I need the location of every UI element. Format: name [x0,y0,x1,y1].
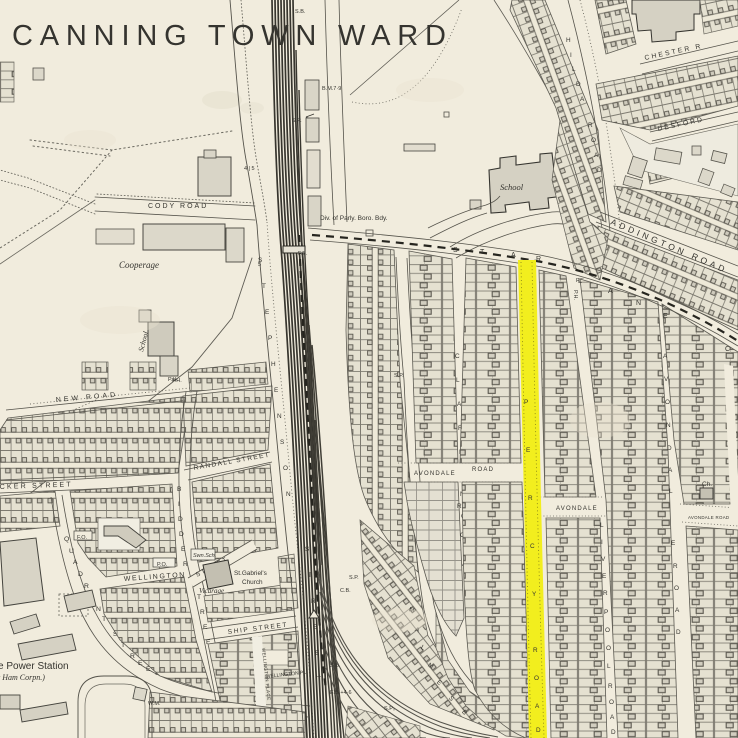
svg-text:C.B.: C.B. [340,588,351,594]
svg-text:AVONDALE ROAD: AVONDALE ROAD [688,515,729,520]
svg-text:B.M.7·9: B.M.7·9 [322,86,341,92]
svg-text:N: N [286,491,291,498]
svg-text:D: D [611,729,616,736]
svg-text:CANNING TOWN WARD: CANNING TOWN WARD [12,20,452,52]
svg-text:R: R [673,563,678,570]
svg-text:E: E [274,387,278,394]
svg-text:E: E [181,546,186,553]
svg-text:A: A [668,467,673,474]
svg-text:O: O [665,399,670,406]
svg-text:V: V [601,556,606,563]
svg-text:P: P [268,335,272,342]
svg-text:L: L [669,488,673,495]
svg-text:U: U [69,548,74,555]
svg-text:R: R [84,583,89,590]
svg-text:O: O [674,585,679,592]
svg-text:E.B.+4·6: E.B.+4·6 [330,690,352,696]
svg-text:N: N [666,422,671,429]
svg-text:E: E [526,447,530,454]
svg-text:Y: Y [532,591,537,598]
svg-text:S.Pₛ: S.Pₛ [384,706,395,712]
svg-text:L: L [607,663,611,670]
svg-text:Ch.: Ch. [702,481,712,488]
svg-text:T: T [480,249,485,256]
svg-text:N: N [96,606,101,613]
svg-text:I: I [601,539,603,546]
svg-text:A: A [675,607,680,614]
svg-text:O: O [283,465,288,472]
svg-text:AVONDALE: AVONDALE [414,471,456,477]
svg-text:S.P.: S.P. [292,118,302,124]
svg-text:A: A [594,152,599,159]
svg-text:E: E [663,313,668,320]
svg-text:5: 5 [258,262,261,268]
svg-text:D: D [676,629,681,636]
svg-text:C: C [725,346,730,353]
svg-text:D: D [178,516,183,523]
svg-text:D: D [576,81,581,88]
svg-text:R: R [183,561,188,568]
svg-text:Q: Q [64,536,69,543]
svg-text:W.M.: W.M. [148,701,161,707]
svg-text:R: R [528,495,533,502]
svg-text:I: I [178,501,180,508]
svg-text:Swn.Sch.: Swn.Sch. [193,553,216,559]
svg-text:R: R [608,683,613,690]
svg-text:T: T [262,283,266,290]
svg-text:V: V [664,376,669,383]
svg-text:R: R [536,256,541,263]
svg-text:S: S [280,439,284,446]
svg-text:O: O [606,645,611,652]
svg-text:R: R [533,647,538,654]
svg-text:B: B [177,486,182,493]
svg-text:Cooperage: Cooperage [119,260,159,270]
svg-text:E: E [203,624,208,631]
svg-text:A: A [511,252,516,259]
svg-text:D: D [597,167,602,174]
svg-text:E: E [138,660,143,667]
svg-text:Div. of Parly. Boro. Bdy.: Div. of Parly. Boro. Bdy. [320,215,388,222]
svg-text:P: P [604,609,608,616]
svg-text:A: A [608,288,613,295]
svg-text:N: N [636,300,641,307]
svg-text:O: O [609,699,614,706]
svg-text:AVONDALE: AVONDALE [556,506,598,512]
svg-text:E: E [265,309,269,316]
svg-text:A: A [663,353,668,360]
svg-text:T: T [197,594,201,601]
svg-text:P.H.: P.H. [572,290,578,300]
svg-text:E: E [671,540,675,547]
svg-text:S.P.: S.P. [349,575,359,581]
svg-text:CODY ROAD: CODY ROAD [148,203,208,210]
svg-text:P.O.: P.O. [157,562,168,568]
svg-text:A: A [610,714,615,721]
svg-text:P: P [524,399,528,406]
svg-text:H: H [566,37,571,44]
svg-text:e Power Station: e Power Station [0,661,69,672]
svg-text:ROAD: ROAD [472,467,494,473]
svg-text:F.O.: F.O. [77,535,88,541]
svg-text:P.H.: P.H. [168,377,178,383]
svg-text:R: R [457,503,462,510]
svg-text:D: D [78,571,83,578]
svg-text:St.Gabriel's: St.Gabriel's [234,570,267,577]
svg-text:E: E [602,573,606,580]
svg-text:School: School [500,182,524,192]
svg-text:D: D [667,445,672,452]
svg-text:D: D [536,727,541,734]
svg-text:H: H [271,361,276,368]
svg-text:A: A [73,559,78,566]
svg-text:4 | 5: 4 | 5 [244,166,255,172]
svg-text:S.B.: S.B. [330,663,341,669]
svg-text:S.B.: S.B. [295,9,306,15]
svg-text:N: N [277,413,282,420]
svg-text:D: D [179,531,184,538]
svg-text:I: I [570,52,572,59]
svg-text:C: C [530,543,535,550]
svg-text:S: S [453,247,458,254]
svg-text:R: R [588,122,593,129]
svg-text:L: L [578,278,582,285]
svg-text:O: O [591,137,596,144]
svg-text:t Ham Corpn.): t Ham Corpn.) [0,673,45,682]
svg-text:L: L [600,522,604,529]
svg-text:R: R [130,653,135,660]
svg-text:C: C [455,353,460,360]
svg-text:O: O [534,675,539,682]
svg-text:R: R [603,590,608,597]
svg-text:O: O [605,627,610,634]
svg-text:R: R [200,609,205,616]
svg-text:Church: Church [242,579,263,586]
svg-text:F.B.: F.B. [298,251,308,257]
svg-text:A: A [535,703,540,710]
svg-text:L: L [456,377,460,384]
svg-text:S.P.: S.P. [394,373,404,379]
svg-text:A: A [580,96,585,103]
svg-text:L: L [572,66,576,73]
